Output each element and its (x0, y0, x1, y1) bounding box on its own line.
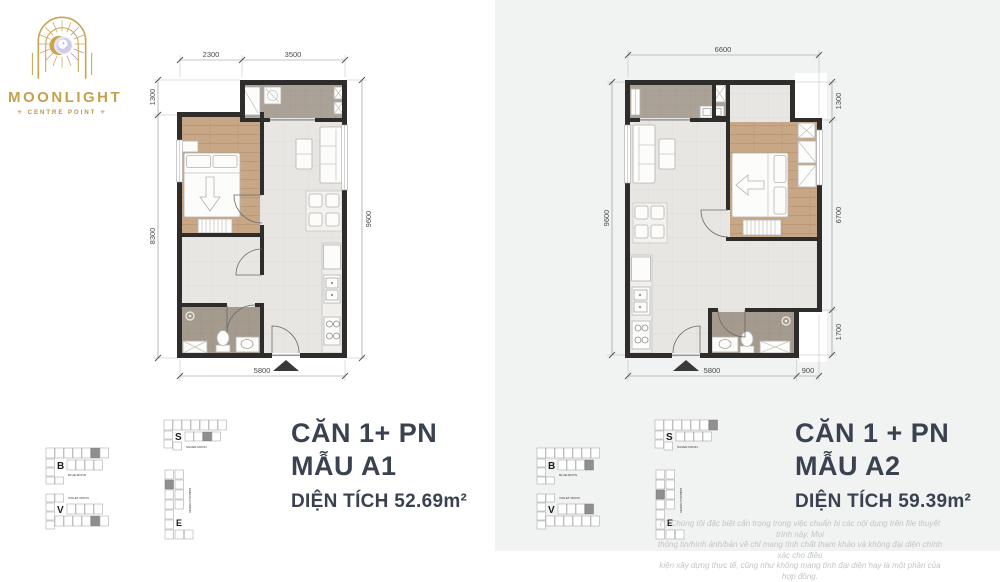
moonlight-emblem-icon (25, 6, 99, 82)
entrance-arrow-a2 (673, 360, 699, 371)
plan-a2-title-line2: MẪU A2 (795, 450, 971, 483)
keyplan-letter: E (176, 518, 182, 528)
keyplan-letter: B (548, 461, 555, 472)
keyplan-name: BLUE MOON (68, 473, 86, 477)
dimension-label: 1700 (834, 324, 843, 341)
keyplan-letter: V (57, 505, 64, 516)
keyplan-name: SILVER MOON (677, 445, 698, 449)
logo-title: MOONLIGHT (8, 89, 116, 106)
plan-a1-area: DIỆN TÍCH 52.69m² (291, 491, 467, 513)
plan-a2-area: DIỆN TÍCH 59.39m² (795, 491, 971, 513)
keyplan-name: BLUE MOON (559, 473, 577, 477)
keyplan-name: VIOLET MOON (68, 496, 89, 500)
keyplan-name: EMERALD MOON (679, 488, 683, 513)
plan-a1-title-block: CĂN 1+ PN MẪU A1 DIỆN TÍCH 52.69m² (291, 417, 467, 513)
moonlight-logo: MOONLIGHT ✳ CENTRE POINT ✳ (8, 6, 116, 116)
plan-a2-title-block: CĂN 1 + PN MẪU A2 DIỆN TÍCH 59.39m² (795, 417, 971, 513)
floorplan-a2: 6600 1300 6700 1700 9600 5800 900 (600, 45, 855, 390)
keyplan-name: VIOLET MOON (559, 496, 580, 500)
plan-a1-title-line2: MẪU A1 (291, 450, 467, 483)
keyplan-blue-moon-a1: B BLUE MOON (44, 446, 112, 486)
dimension-label: 9600 (602, 210, 611, 227)
plan-a2-title-line1: CĂN 1 + PN (795, 417, 971, 450)
dimension-label: 3500 (285, 50, 302, 59)
keyplan-letter: S (175, 432, 182, 443)
keyplan-name: EMERALD MOON (188, 488, 192, 513)
keyplan-name: SILVER MOON (186, 445, 207, 449)
keyplan-violet-moon-a1: VIOLET MOON V (44, 492, 112, 536)
keyplan-silver-moon-a1: S SILVER MOON (162, 418, 232, 453)
keyplan-violet-moon-a2: VIOLET MOON V (535, 492, 603, 536)
dimension-label: 5800 (254, 366, 271, 375)
keyplan-emerald-moon-a1: E EMERALD MOON (163, 468, 199, 543)
dimension-label: 9600 (364, 211, 373, 228)
dimension-label: 1300 (148, 89, 157, 106)
entrance-arrow-a1 (273, 360, 299, 371)
keyplan-letter: S (666, 432, 673, 443)
keyplan-silver-moon-a2: S SILVER MOON (653, 418, 723, 453)
dimension-label: 2300 (203, 50, 220, 59)
dimension-label: 900 (802, 366, 815, 375)
disclaimer-line1: (*) Chúng tôi đặc biệt cẩn trọng trong v… (655, 519, 945, 540)
dimension-label: 8300 (148, 228, 157, 245)
keyplan-letter: B (57, 461, 64, 472)
dimension-label: 5800 (704, 366, 721, 375)
floorplan-a1: 2300 3500 1300 8300 9600 5800 (140, 45, 375, 390)
disclaimer-line3: kiện xây dựng thực tế, cũng như không ma… (655, 561, 945, 582)
dimension-label: 6700 (834, 207, 843, 224)
keyplan-letter: V (548, 505, 555, 516)
dimension-label: 6600 (715, 45, 732, 54)
logo-subtitle: ✳ CENTRE POINT ✳ (8, 109, 116, 116)
keyplan-blue-moon-a2: B BLUE MOON (535, 446, 603, 486)
dimension-label: 1300 (834, 93, 843, 110)
plan-a1-title-line1: CĂN 1+ PN (291, 417, 467, 450)
